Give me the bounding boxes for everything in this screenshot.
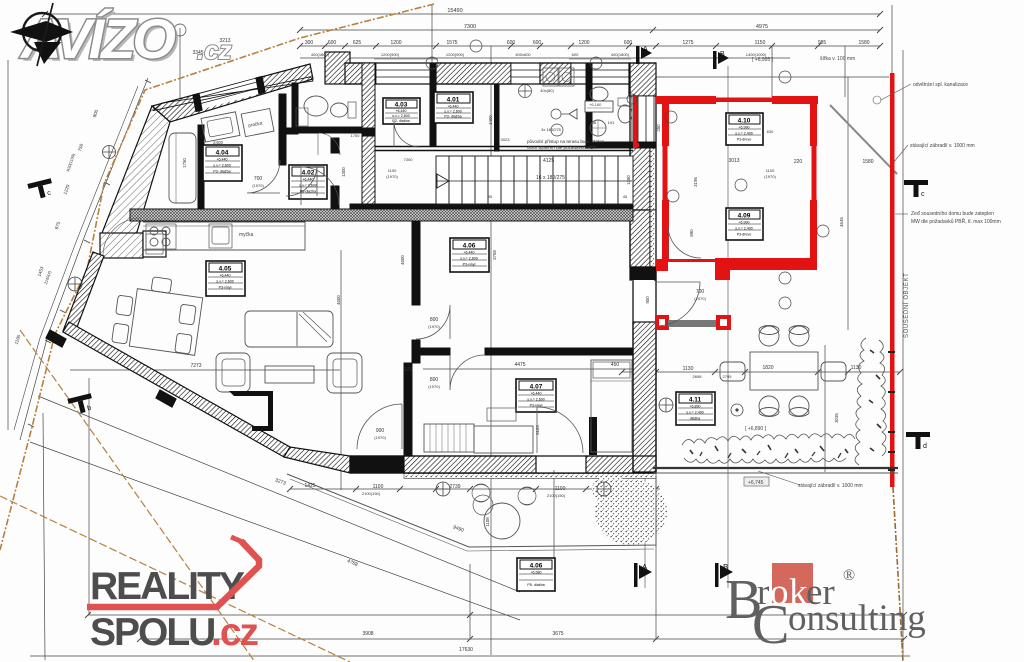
svg-text:600: 600 <box>624 40 633 46</box>
svg-text:4600: 4600 <box>400 255 405 265</box>
svg-text:+6,440: +6,440 <box>302 178 313 182</box>
svg-text:1100: 1100 <box>373 484 384 490</box>
svg-text:+6,440: +6,440 <box>219 274 230 278</box>
svg-text:7273: 7273 <box>190 363 201 369</box>
svg-text:+6,990: +6,990 <box>738 126 749 130</box>
svg-text:2100(150): 2100(150) <box>362 491 381 496</box>
svg-text:(1970): (1970) <box>428 384 440 389</box>
svg-text:400(1800): 400(1800) <box>611 52 630 57</box>
svg-text:+6,440: +6,440 <box>447 105 458 109</box>
svg-text:P3-vinyl: P3-vinyl <box>219 286 232 290</box>
svg-text:191: 191 <box>608 120 615 125</box>
svg-text:2795: 2795 <box>723 374 733 379</box>
svg-text:(1970): (1970) <box>764 174 776 179</box>
svg-text:45: 45 <box>488 194 493 199</box>
svg-text:3103: 3103 <box>535 425 540 435</box>
svg-text:1108: 1108 <box>485 517 490 527</box>
svg-text:1200(900): 1200(900) <box>381 52 400 57</box>
svg-text:P3-vinyl: P3-vinyl <box>463 263 476 267</box>
svg-text:4.05: 4.05 <box>219 266 232 273</box>
svg-text:3x 160/275: 3x 160/275 <box>541 127 562 132</box>
svg-text:3908: 3908 <box>362 631 373 637</box>
svg-text:1425: 1425 <box>304 483 315 489</box>
svg-text:s.v.= 2,600: s.v.= 2,600 <box>392 114 409 118</box>
svg-text:A: A <box>642 563 648 572</box>
svg-text:[ +6,890 ]: [ +6,890 ] <box>745 426 767 432</box>
svg-text:Zeď sousedního domu bude zatep: Zeď sousedního domu bude zateplen <box>911 211 994 217</box>
svg-text:1150: 1150 <box>755 40 766 46</box>
svg-text:300: 300 <box>305 40 314 46</box>
svg-text:+6,180: +6,180 <box>589 102 602 107</box>
svg-text:4975: 4975 <box>756 24 768 30</box>
svg-text:1380: 1380 <box>626 175 631 185</box>
svg-text:4.01: 4.01 <box>447 97 460 104</box>
svg-text:SPOLU: SPOLU <box>90 611 214 654</box>
svg-text:.cz: .cz <box>211 611 259 654</box>
svg-text:1100: 1100 <box>766 168 775 173</box>
svg-text:1580: 1580 <box>858 40 869 46</box>
svg-text:+6,990: +6,990 <box>738 221 749 225</box>
svg-text:[ +6,995 ]: [ +6,995 ] <box>752 57 774 63</box>
svg-text:250: 250 <box>656 124 661 132</box>
svg-text:40x(80): 40x(80) <box>540 88 554 93</box>
svg-text:A: A <box>643 46 648 53</box>
svg-text:(1970): (1970) <box>428 324 440 329</box>
svg-text:1750: 1750 <box>182 158 187 168</box>
svg-text:600: 600 <box>533 40 542 46</box>
svg-text:dlažba: dlažba <box>690 417 701 421</box>
svg-text:4.02: 4.02 <box>302 170 315 177</box>
svg-text:1200(900): 1200(900) <box>446 52 465 57</box>
svg-text:+6,745: +6,745 <box>748 480 764 486</box>
svg-text:P5- dlažba: P5- dlažba <box>527 583 544 587</box>
svg-text:400x600: 400x600 <box>515 52 531 57</box>
svg-text:45: 45 <box>623 194 628 199</box>
svg-text:P2- dlažba: P2- dlažba <box>392 119 409 123</box>
svg-text:2739: 2739 <box>449 484 460 490</box>
svg-text:+6,440: +6,440 <box>395 109 406 113</box>
svg-text:(1970): (1970) <box>252 183 264 188</box>
svg-text:900: 900 <box>376 428 385 434</box>
svg-text:c: c <box>921 191 925 198</box>
svg-text:450: 450 <box>611 362 620 368</box>
svg-text:4.03: 4.03 <box>395 102 408 109</box>
svg-text:4.04: 4.04 <box>216 150 229 157</box>
svg-text:1100: 1100 <box>388 168 397 173</box>
svg-text:P3-dřevo: P3-dřevo <box>737 138 752 142</box>
svg-text:4600: 4600 <box>336 295 341 305</box>
svg-text:630: 630 <box>767 129 774 134</box>
svg-text:4.06: 4.06 <box>530 563 543 570</box>
svg-text:600: 600 <box>328 40 337 46</box>
svg-text:1200: 1200 <box>578 40 589 46</box>
svg-text:4125: 4125 <box>543 158 554 164</box>
svg-text:stávající zábradlí v. 1000 mm: stávající zábradlí v. 1000 mm <box>798 483 863 489</box>
svg-text:890: 890 <box>689 229 694 237</box>
svg-text:4645: 4645 <box>839 217 844 227</box>
svg-text:s.v.= 2,600: s.v.= 2,600 <box>527 398 544 402</box>
svg-text:7300: 7300 <box>464 24 476 30</box>
svg-text:2100(150): 2100(150) <box>547 493 566 498</box>
svg-text:3195: 3195 <box>693 177 698 187</box>
svg-text:7300: 7300 <box>404 157 414 162</box>
svg-text:myčka: myčka <box>239 232 254 238</box>
svg-text:1400: 1400 <box>488 115 493 125</box>
svg-text:šířka v. 100 mm: šířka v. 100 mm <box>820 56 855 62</box>
svg-text:1750: 1750 <box>351 133 361 138</box>
svg-text:400(1800): 400(1800) <box>311 52 330 57</box>
svg-text:P3- dlažba: P3- dlažba <box>444 115 461 119</box>
svg-text:+6,580: +6,580 <box>530 571 541 575</box>
svg-text:4.10: 4.10 <box>738 118 751 125</box>
svg-text:900: 900 <box>645 296 650 304</box>
svg-text:C: C <box>752 594 789 656</box>
svg-text:600: 600 <box>572 52 579 57</box>
svg-text:stávající zábradlí v. 1000 mm: stávající zábradlí v. 1000 mm <box>910 143 975 149</box>
svg-text:d: d <box>923 443 927 450</box>
svg-text:odvětrání spl. kanalizace: odvětrání spl. kanalizace <box>913 82 968 88</box>
svg-text:800: 800 <box>430 377 439 383</box>
svg-text:P3- dlažba: P3- dlažba <box>213 170 230 174</box>
svg-text:800: 800 <box>430 317 439 323</box>
svg-text:1200: 1200 <box>390 40 401 46</box>
svg-text:1580: 1580 <box>862 159 873 165</box>
svg-text:1575: 1575 <box>446 40 457 46</box>
svg-text:985: 985 <box>818 40 827 46</box>
svg-text:s.v.= 2,600: s.v.= 2,600 <box>460 257 477 261</box>
svg-text:123: 123 <box>404 367 413 373</box>
svg-text:s.v.= 2,600: s.v.= 2,600 <box>216 280 233 284</box>
svg-text:s.v.= 2,600: s.v.= 2,600 <box>444 110 461 114</box>
svg-text:SOUSEDNÍ OBJEKT: SOUSEDNÍ OBJEKT <box>903 273 910 338</box>
svg-text:1300: 1300 <box>341 167 346 177</box>
svg-text:+6,440: +6,440 <box>530 392 541 396</box>
svg-text:s.v.= 2,400: s.v.= 2,400 <box>735 132 752 136</box>
svg-text:®: ® <box>843 567 855 584</box>
svg-text:17630: 17630 <box>459 647 473 653</box>
svg-text:(1970): (1970) <box>374 435 386 440</box>
svg-text:s.v.= 2,400: s.v.= 2,400 <box>686 411 703 415</box>
svg-text:220: 220 <box>794 159 803 165</box>
svg-text:46: 46 <box>592 120 597 125</box>
svg-text:3013: 3013 <box>728 158 739 164</box>
svg-text:s.v.= 2,600: s.v.= 2,600 <box>213 164 230 168</box>
svg-text:2698: 2698 <box>693 374 703 379</box>
svg-text:P3-dřevo: P3-dřevo <box>737 233 752 237</box>
svg-text:1275: 1275 <box>682 40 693 46</box>
svg-text:MW dle požadavků PBŘ, tl. max: MW dle požadavků PBŘ, tl. max 100mm <box>911 217 1001 225</box>
svg-text:3035: 3035 <box>834 413 839 423</box>
svg-text:3768: 3768 <box>492 250 497 260</box>
svg-text:4.11: 4.11 <box>689 397 702 404</box>
svg-text:4.09: 4.09 <box>738 213 751 220</box>
svg-text:otvor uzavřen dle požadavků PB: otvor uzavřen dle požadavků PBŘ <box>527 143 597 150</box>
svg-text:+6,440: +6,440 <box>463 251 474 255</box>
svg-text:16 x 180/275: 16 x 180/275 <box>536 175 565 181</box>
svg-text:1100: 1100 <box>555 486 566 492</box>
svg-text:1130: 1130 <box>683 366 694 372</box>
svg-text:.cz: .cz <box>197 35 232 65</box>
svg-text:700: 700 <box>696 289 705 295</box>
svg-text:s.v.= 2,400: s.v.= 2,400 <box>735 227 752 231</box>
svg-text:(1970): (1970) <box>694 296 706 301</box>
svg-text:1130: 1130 <box>851 365 862 371</box>
svg-text:1820: 1820 <box>762 365 773 371</box>
svg-text:15490: 15490 <box>447 8 462 14</box>
svg-text:700: 700 <box>254 176 263 182</box>
svg-text:B: B <box>720 51 725 58</box>
svg-text:původní přístup na terasu bude: původní přístup na terasu bude stolen <box>527 138 605 144</box>
svg-text:(1970): (1970) <box>386 174 398 179</box>
svg-text:+6,890: +6,890 <box>689 405 700 409</box>
svg-text:3675: 3675 <box>552 631 563 637</box>
svg-text:+6,440: +6,440 <box>216 158 227 162</box>
svg-text:4.07: 4.07 <box>530 384 543 391</box>
svg-text:1400(1000): 1400(1000) <box>746 52 767 57</box>
svg-text:4475: 4475 <box>514 362 525 368</box>
svg-text:3023: 3023 <box>501 137 511 142</box>
svg-text:onsulting: onsulting <box>788 598 926 639</box>
svg-text:625: 625 <box>353 40 362 46</box>
svg-text:600: 600 <box>507 40 516 46</box>
svg-text:2400: 2400 <box>213 140 224 145</box>
svg-text:4.06: 4.06 <box>463 243 476 250</box>
